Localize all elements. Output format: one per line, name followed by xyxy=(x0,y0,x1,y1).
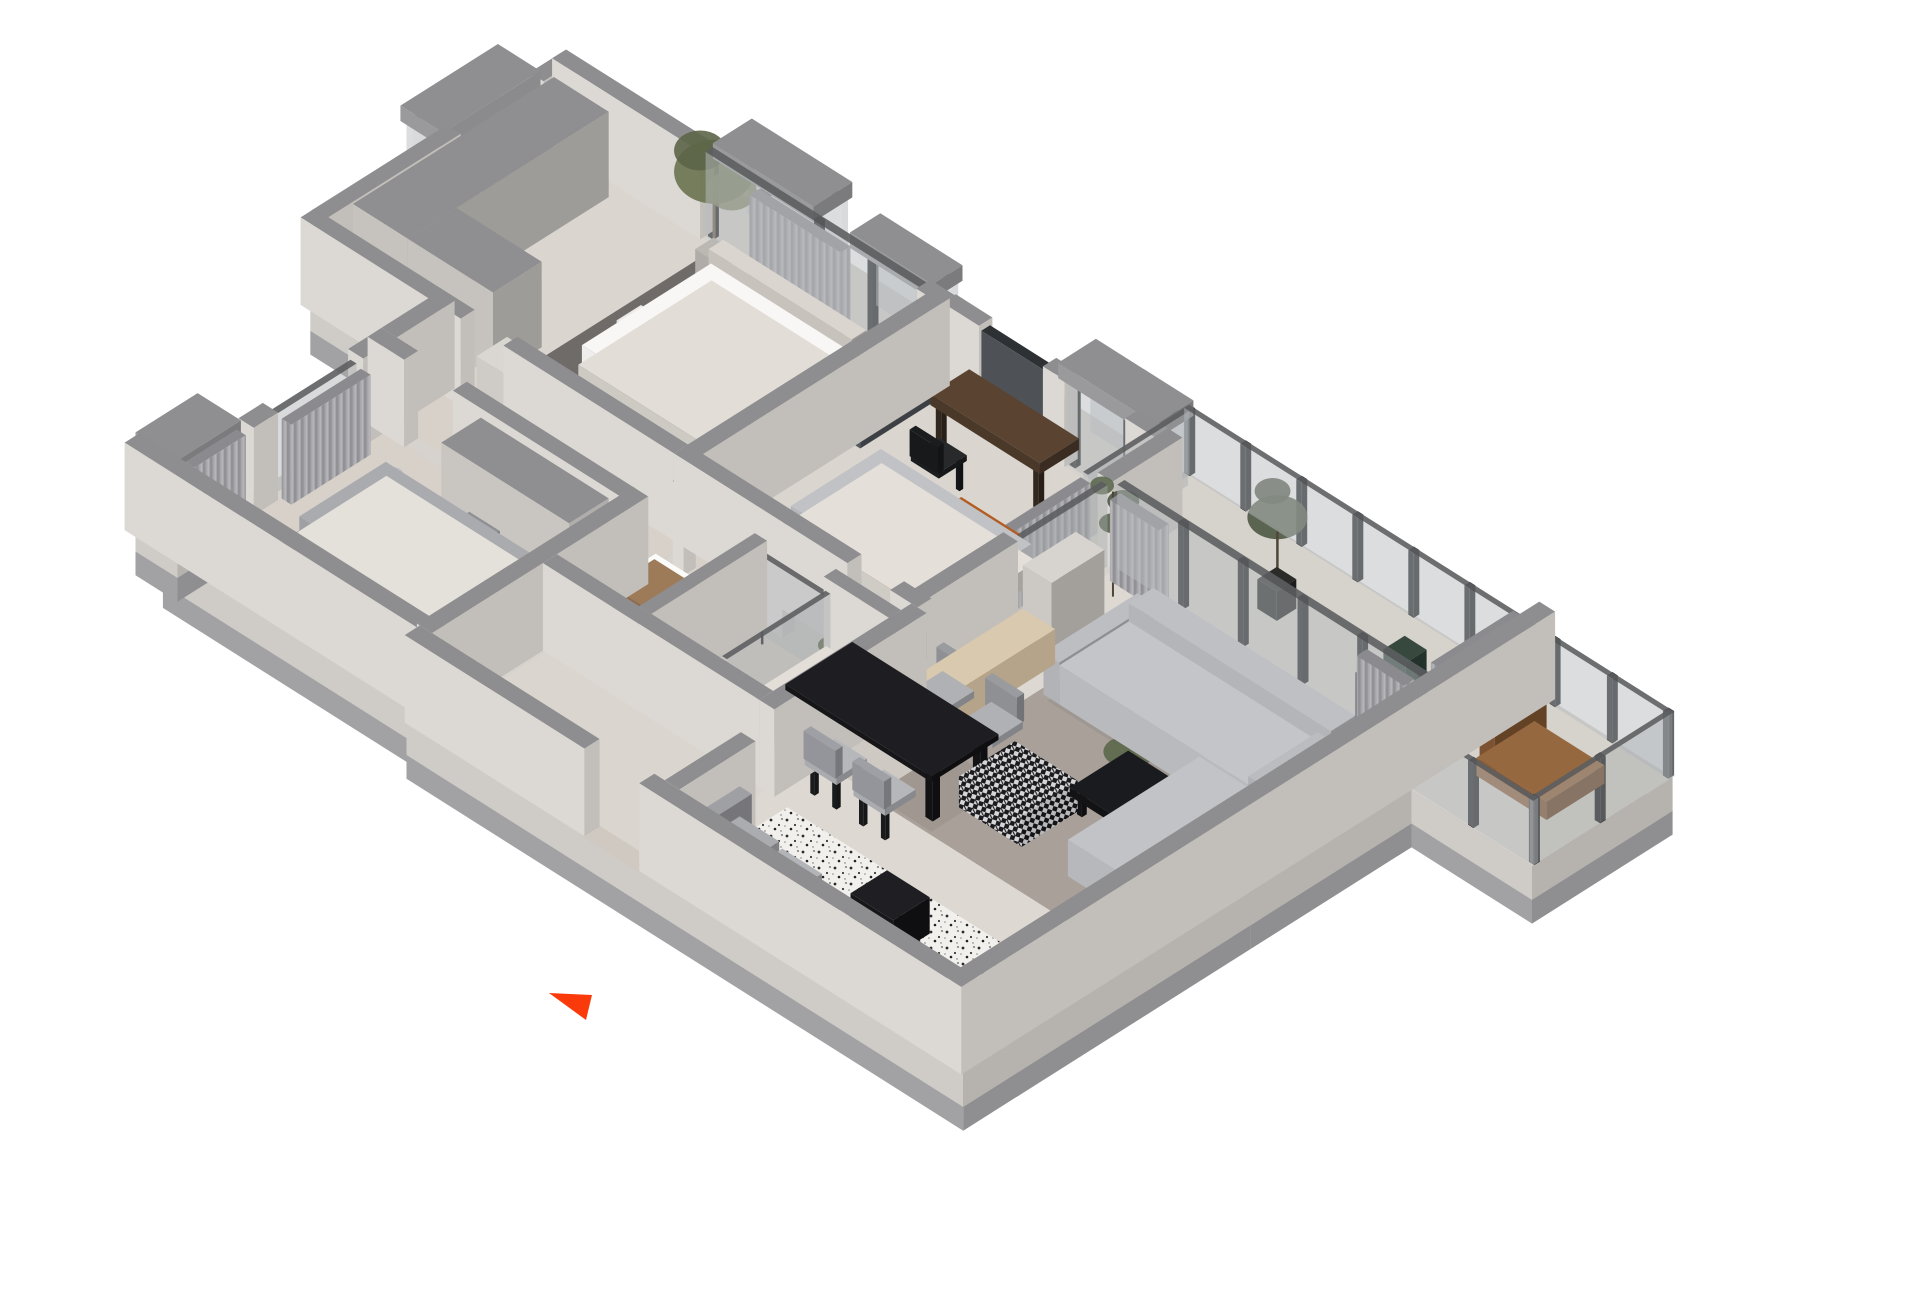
entrance-marker xyxy=(549,993,592,1020)
apartment-isometric-render xyxy=(0,0,1920,1291)
floorplan-svg xyxy=(0,0,1920,1291)
walls-and-furniture xyxy=(125,44,1675,1075)
entrance-direction-arrow xyxy=(549,993,592,1020)
